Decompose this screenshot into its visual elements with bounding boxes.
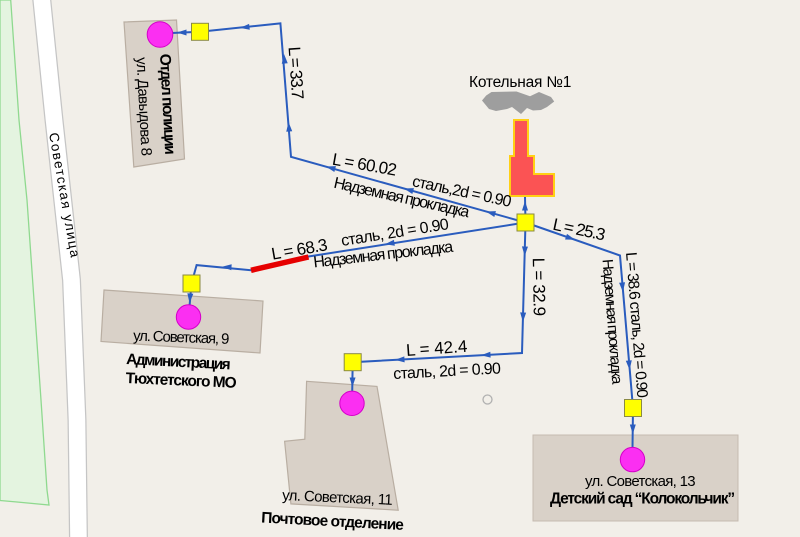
svg-text:Детский сад “Колокольчик”: Детский сад “Колокольчик” <box>550 491 734 508</box>
svg-text:L = 33.7: L = 33.7 <box>285 46 308 100</box>
svg-text:ул. Советская, 9: ул. Советская, 9 <box>133 328 229 348</box>
svg-text:ул. Советская, 13: ул. Советская, 13 <box>585 473 695 490</box>
svg-text:L = 32.9: L = 32.9 <box>529 258 549 316</box>
svg-text:Котельная №1: Котельная №1 <box>469 74 571 91</box>
